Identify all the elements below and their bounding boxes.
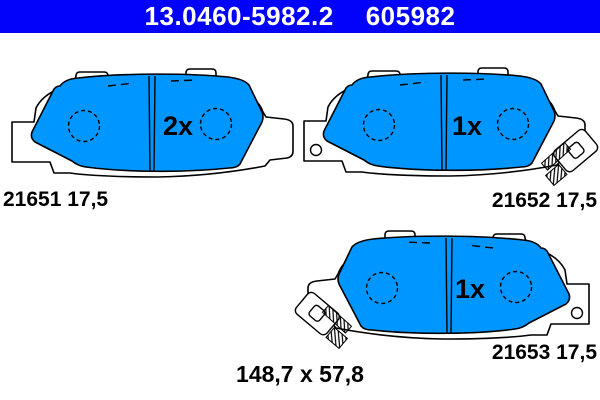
- friction-material: [323, 73, 555, 170]
- ear-hole: [572, 308, 583, 319]
- reference-number-text: 605982: [366, 1, 456, 32]
- mirrored-plate-group: [293, 231, 589, 348]
- dimension-label: 148,7 x 57,8: [0, 361, 600, 388]
- count-label: 1x: [455, 274, 485, 304]
- brake-pad-datasheet: 13.0460-5982.2 605982 2x 1x: [0, 0, 600, 400]
- part-label-21652: 21652 17,5: [492, 189, 597, 213]
- count-label: 2x: [163, 111, 193, 141]
- friction-material: [31, 74, 263, 171]
- friction-material: [338, 236, 570, 333]
- brake-pad-diagram-21652: 1x: [300, 63, 590, 208]
- header-bar: 13.0460-5982.2 605982: [0, 0, 600, 33]
- ear-hole: [311, 145, 322, 156]
- part-label-21651: 21651 17,5: [3, 188, 108, 212]
- count-label: 1x: [452, 111, 482, 141]
- catalog-number-text: 13.0460-5982.2: [145, 1, 334, 32]
